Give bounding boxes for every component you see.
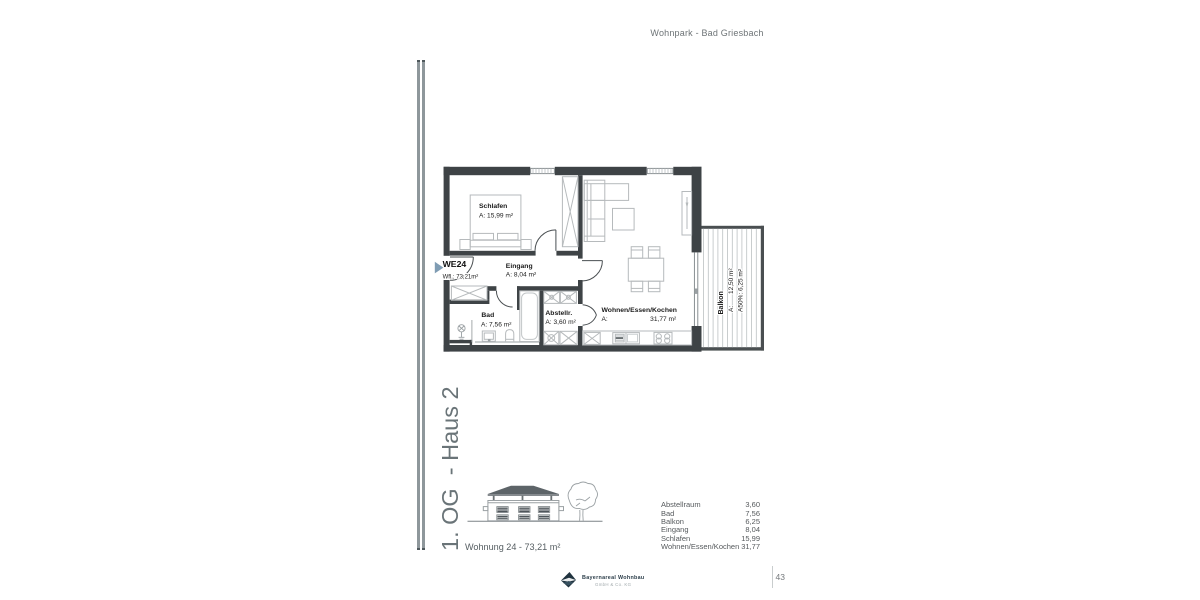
svg-text:Eingang: Eingang <box>506 263 533 270</box>
svg-text:A: 8,04 m²: A: 8,04 m² <box>506 272 537 279</box>
svg-text:Bad: Bad <box>481 312 494 319</box>
svg-text:Wfl.: 73,21m²: Wfl.: 73,21m² <box>443 275 479 281</box>
svg-text:A:: A: <box>602 316 608 323</box>
svg-text:Schlafen: Schlafen <box>479 203 507 210</box>
svg-text:Wohnen/Essen/Kochen: Wohnen/Essen/Kochen <box>602 307 677 314</box>
svg-text:31,77 m²: 31,77 m² <box>650 316 677 323</box>
svg-text:A: 15,99 m²: A: 15,99 m² <box>479 213 514 220</box>
svg-text:Abstellr.: Abstellr. <box>545 310 572 317</box>
svg-text:A: 7,56 m²: A: 7,56 m² <box>481 321 512 328</box>
svg-text:A: 3,60 m²: A: 3,60 m² <box>545 319 576 326</box>
svg-text:Balkon: Balkon <box>718 291 725 314</box>
svg-text:12,50 m²: 12,50 m² <box>728 268 735 294</box>
svg-text:A:: A: <box>728 306 735 312</box>
svg-text:WE24: WE24 <box>443 259 467 269</box>
svg-text:A50%: 6,25 m²: A50%: 6,25 m² <box>738 268 745 312</box>
